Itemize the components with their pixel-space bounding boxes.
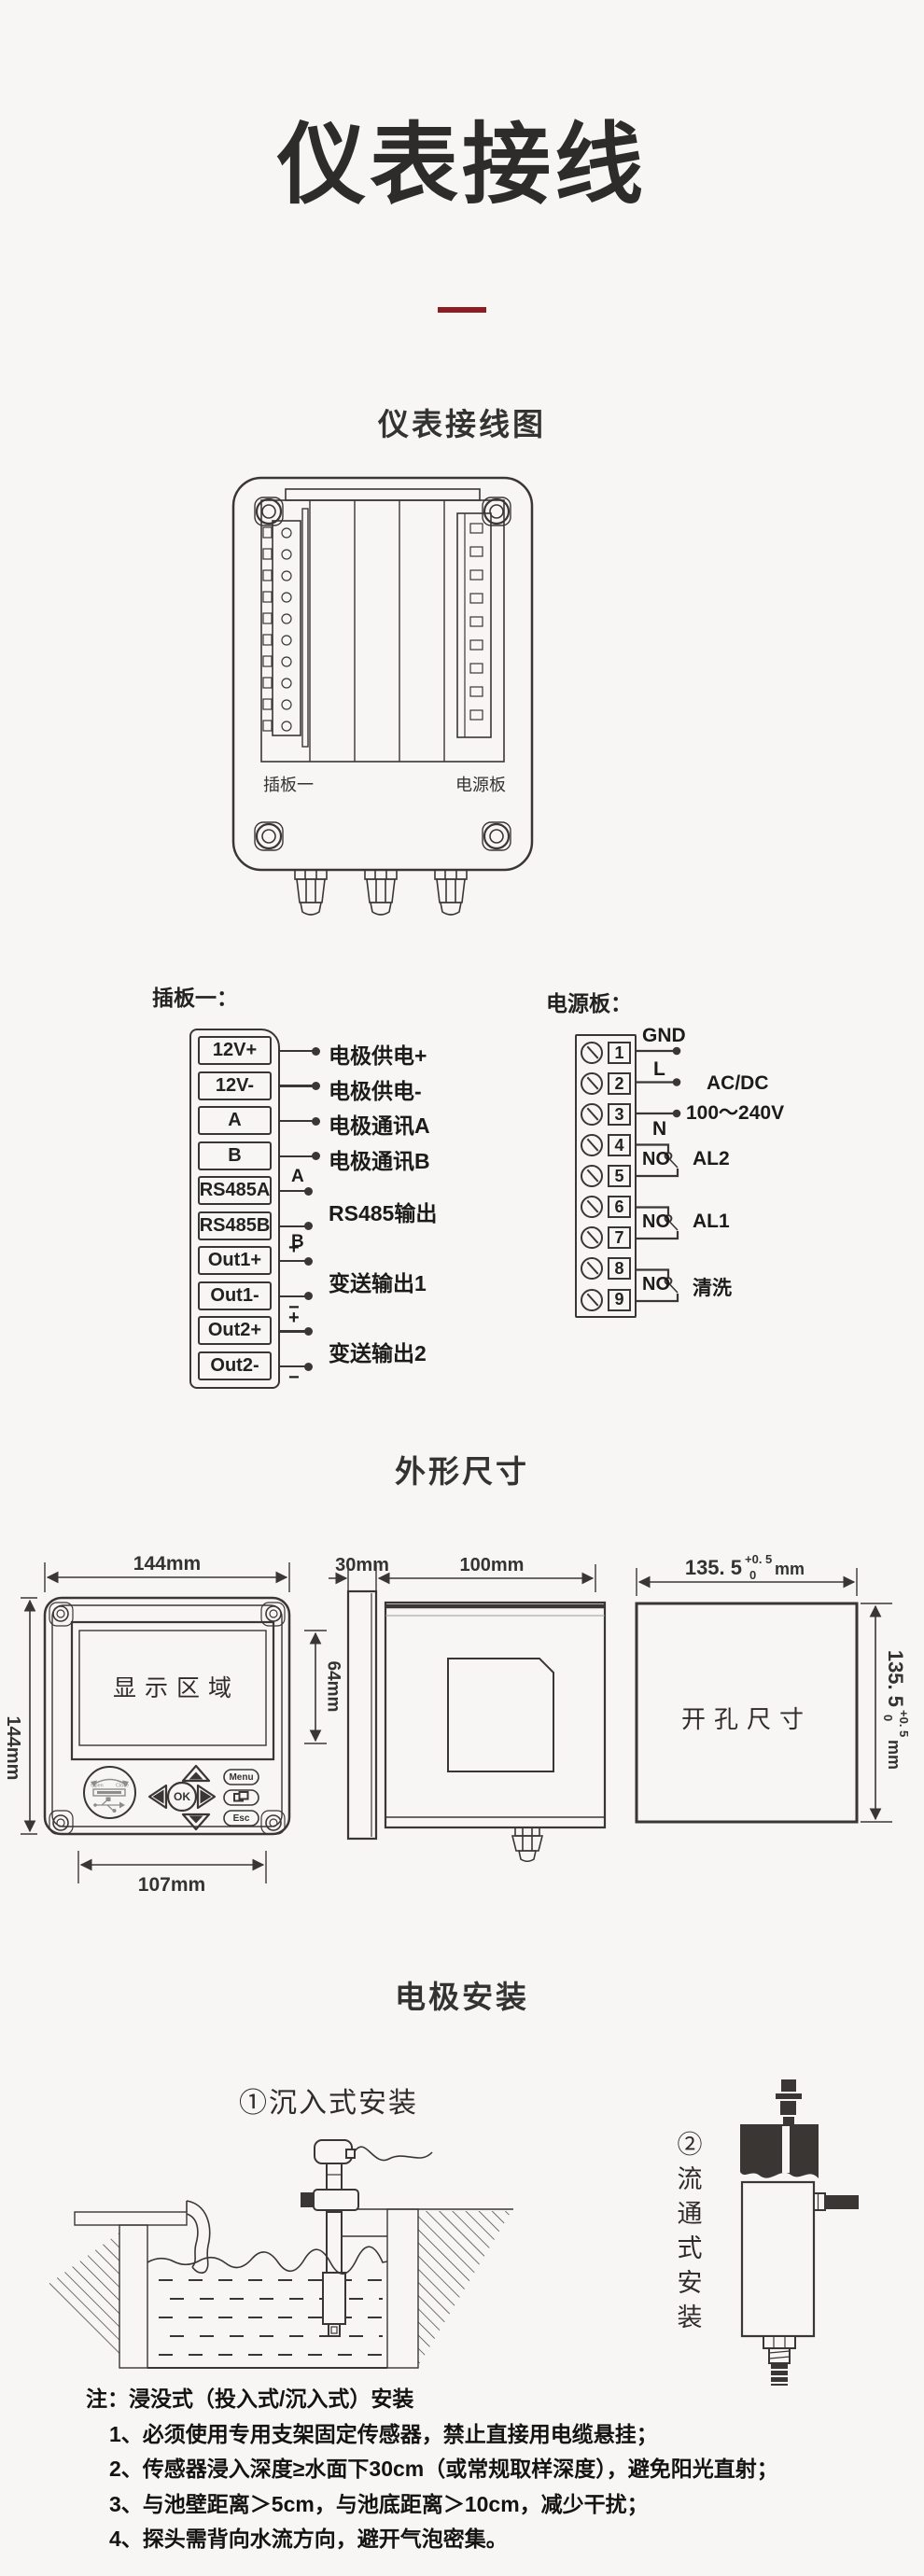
dim-cutout-width: 135. 5 +0. 5 0 mm — [685, 1552, 805, 1582]
screw-icon — [581, 1072, 603, 1095]
desc-transmit-out1: 变送输出1 — [329, 1266, 427, 1297]
dim-bezel-depth: 30mm — [335, 1555, 389, 1575]
svg-text:135. 5: 135. 5 — [884, 1650, 907, 1707]
terminal-12v-plus: 12V+ — [198, 1036, 272, 1065]
section-title-wiring: 仪表接线图 — [0, 399, 924, 444]
wire-dot — [304, 1363, 313, 1371]
svg-text:Menu: Menu — [229, 1772, 253, 1783]
water-surface — [147, 2247, 387, 2274]
wire-line — [280, 1085, 315, 1086]
powerboard-heading: 电源板： — [546, 986, 632, 1017]
screw-icon — [581, 1196, 603, 1218]
dim-panel-width: 107mm — [138, 1874, 205, 1896]
wire-dot — [312, 1082, 320, 1090]
tank-left-wall — [119, 2225, 147, 2368]
wire-line — [280, 1120, 315, 1122]
wire-line — [280, 1260, 307, 1262]
terminal-a: A — [198, 1106, 272, 1135]
section-title-install: 电极安装 — [0, 1972, 924, 2017]
keypad: OK — [149, 1766, 215, 1829]
cutout-label: 开孔尺寸 — [681, 1706, 812, 1734]
note-item: 4、探头需背向水流方向，避开气泡密集。 — [109, 2522, 778, 2557]
label-al2: AL2 — [693, 1148, 730, 1170]
cable-gland-icon — [295, 870, 467, 915]
flow-cell-diagram — [740, 2079, 859, 2386]
label-no: NO — [642, 1211, 670, 1233]
label-no: NO — [642, 1274, 670, 1295]
mark-minus: − — [288, 1367, 300, 1389]
power-terminal-row: 8 — [580, 1255, 632, 1281]
label-no: NO — [642, 1149, 670, 1170]
label-gnd: GND — [642, 1025, 686, 1047]
wire-dot — [304, 1187, 313, 1196]
screw-icon — [581, 1134, 603, 1156]
lid-seam — [286, 489, 480, 500]
enclosure-diagram: 插板一 电源板 — [229, 471, 537, 929]
installation-drawings — [0, 2063, 924, 2399]
wire-dot — [312, 1047, 320, 1056]
screw-icon — [581, 1289, 603, 1311]
screw-icon — [581, 1042, 603, 1064]
power-label: 电源板 — [455, 776, 506, 794]
electrode-fitting — [776, 2079, 802, 2126]
page: 仪表接线 仪表接线图 — [0, 0, 924, 2576]
inlet-port — [763, 2336, 795, 2386]
slot1-label: 插板一 — [263, 776, 314, 794]
wire-line — [280, 1330, 307, 1332]
wire-dot — [304, 1222, 313, 1230]
desc-electrode-comm-b: 电极通讯B — [329, 1143, 430, 1175]
svg-text:+0. 5: +0. 5 — [745, 1552, 772, 1566]
power-terminal-row: 3 — [580, 1101, 632, 1127]
svg-text:mm: mm — [885, 1740, 903, 1770]
label-neutral: N — [652, 1118, 666, 1141]
water-fill — [159, 2280, 383, 2355]
dimension-drawings: 144mm 显示区域 144mm 64mm 107mm — [0, 1521, 924, 1904]
desc-electrode-comm-a: 电极通讯A — [329, 1108, 430, 1140]
terminal-rs485a: RS485A — [198, 1176, 272, 1205]
powerboard-table: 1 2 3 4 5 6 7 8 9 — [575, 1034, 637, 1318]
wire-dot — [304, 1292, 313, 1300]
usb-cover-knob: Open Close — [84, 1767, 135, 1818]
terminal-out2-plus: Out2+ — [198, 1316, 272, 1345]
powerboard-strip — [457, 513, 491, 737]
tank-right-wall — [387, 2209, 418, 2368]
immersion-tank-diagram — [45, 2140, 513, 2368]
flow-cell-cap — [740, 2124, 819, 2178]
power-terminal-row: 2 — [580, 1071, 632, 1097]
installation-notes: 注：浸没式（投入式/沉入式）安装 1、必须使用专用支架固定传感器，禁止直接用电缆… — [86, 2382, 778, 2557]
usb-icon — [93, 1798, 125, 1813]
power-terminal-row: 7 — [580, 1225, 632, 1251]
terminal-rs485b: RS485B — [198, 1211, 272, 1240]
side-view: 30mm 100mm — [329, 1555, 605, 1861]
mark-plus: + — [288, 1308, 300, 1329]
electrode-probe — [301, 2140, 432, 2336]
knob-open-label: Open — [91, 1784, 103, 1789]
label-supply: AC/DC — [707, 1072, 769, 1095]
cable-gland-icon — [512, 1827, 542, 1861]
dim-display-height: 64mm — [324, 1661, 343, 1713]
wire-dot — [304, 1257, 313, 1266]
terminal-out1-minus: Out1- — [198, 1281, 272, 1310]
probe-cable — [355, 2147, 432, 2160]
cutout-view: 135. 5 +0. 5 0 mm 开孔尺寸 135. 5 +0. 5 0 mm — [637, 1552, 911, 1822]
svg-text:0: 0 — [749, 1568, 756, 1582]
power-terminal-row: 9 — [580, 1287, 632, 1313]
slot-dividers — [310, 500, 444, 762]
terminal-12v-minus: 12V- — [198, 1071, 272, 1100]
power-terminal-row: 4 — [580, 1132, 632, 1158]
svg-text:mm: mm — [775, 1560, 805, 1578]
wire-dot — [312, 1152, 320, 1160]
mark-rs485-a: A — [291, 1167, 304, 1187]
knob-close-label: Close — [116, 1784, 129, 1789]
right-bank-hatch — [418, 2211, 511, 2366]
label-supply-range: 100～240V — [686, 1098, 784, 1126]
label-wash: 清洗 — [693, 1273, 732, 1301]
note-item: 1、必须使用专用支架固定传感器，禁止直接用电缆悬挂； — [109, 2417, 778, 2453]
note-title: 注：浸没式（投入式/沉入式）安装 — [86, 2382, 778, 2417]
deck — [75, 2212, 187, 2225]
wire-line — [280, 1155, 315, 1157]
terminal-out2-minus: Out2- — [198, 1351, 272, 1380]
dim-cutout-height: 135. 5 +0. 5 0 mm — [881, 1650, 911, 1770]
desc-electrode-power-plus: 电极供电+ — [329, 1038, 427, 1070]
mounting-bracket — [314, 2190, 358, 2210]
plugboard-strip — [263, 509, 308, 747]
power-terminal-row: 6 — [580, 1194, 632, 1220]
screw-icon — [255, 497, 511, 850]
power-terminal-row: 5 — [580, 1163, 632, 1189]
front-view: 144mm 显示区域 144mm 64mm 107mm — [3, 1553, 343, 1896]
plugboard-heading: 插板一： — [152, 980, 238, 1012]
flow-cell-body — [742, 2182, 814, 2336]
dim-front-height: 144mm — [3, 1716, 23, 1781]
svg-text:+0. 5: +0. 5 — [897, 1710, 911, 1737]
power-terminal-row: 1 — [580, 1040, 632, 1066]
wire-dot — [304, 1327, 313, 1336]
terminal-out1-plus: Out1+ — [198, 1246, 272, 1275]
note-item: 3、与池壁距离＞5cm，与池底距离＞10cm，减少干扰； — [109, 2487, 778, 2523]
section-title-dims: 外形尺寸 — [0, 1447, 924, 1491]
wire-dot — [312, 1117, 320, 1126]
wire-line — [280, 1225, 307, 1227]
wire-line — [280, 1190, 307, 1192]
svg-text:OK: OK — [174, 1790, 190, 1803]
mark-plus: + — [288, 1238, 300, 1259]
page-title: 仪表接线 — [0, 93, 924, 221]
display-label: 显示区域 — [113, 1674, 240, 1701]
screw-icon — [581, 1165, 603, 1187]
label-al1: AL1 — [693, 1211, 730, 1233]
plugboard-table: 12V+ 12V- A B RS485A RS485B Out1+ Out1- … — [189, 1029, 280, 1389]
left-bank-hatch — [45, 2233, 119, 2363]
desc-rs485-output: RS485输出 — [329, 1196, 437, 1227]
note-item: 2、传感器浸入深度≥水面下30cm（或常规取样深度），避免阳光直射； — [109, 2452, 778, 2487]
svg-text:Esc: Esc — [233, 1813, 250, 1824]
accent-divider — [438, 307, 486, 313]
enclosure-outline — [233, 478, 532, 870]
slot-panel — [261, 500, 504, 762]
label-live: L — [653, 1058, 665, 1081]
desc-transmit-out2: 变送输出2 — [329, 1336, 427, 1367]
svg-text:135. 5: 135. 5 — [685, 1556, 742, 1579]
screw-icon — [581, 1257, 603, 1280]
terminal-b: B — [198, 1141, 272, 1170]
dim-front-width: 144mm — [133, 1553, 201, 1575]
wire-line — [280, 1050, 315, 1052]
desc-electrode-power-minus: 电极供电- — [329, 1073, 422, 1105]
svg-text:0: 0 — [881, 1715, 895, 1721]
side-buttons: Menu Esc — [224, 1770, 259, 1826]
screw-icon — [581, 1226, 603, 1249]
outlet-port — [814, 2193, 859, 2210]
screw-icon — [581, 1103, 603, 1126]
dim-body-depth: 100mm — [460, 1555, 525, 1575]
